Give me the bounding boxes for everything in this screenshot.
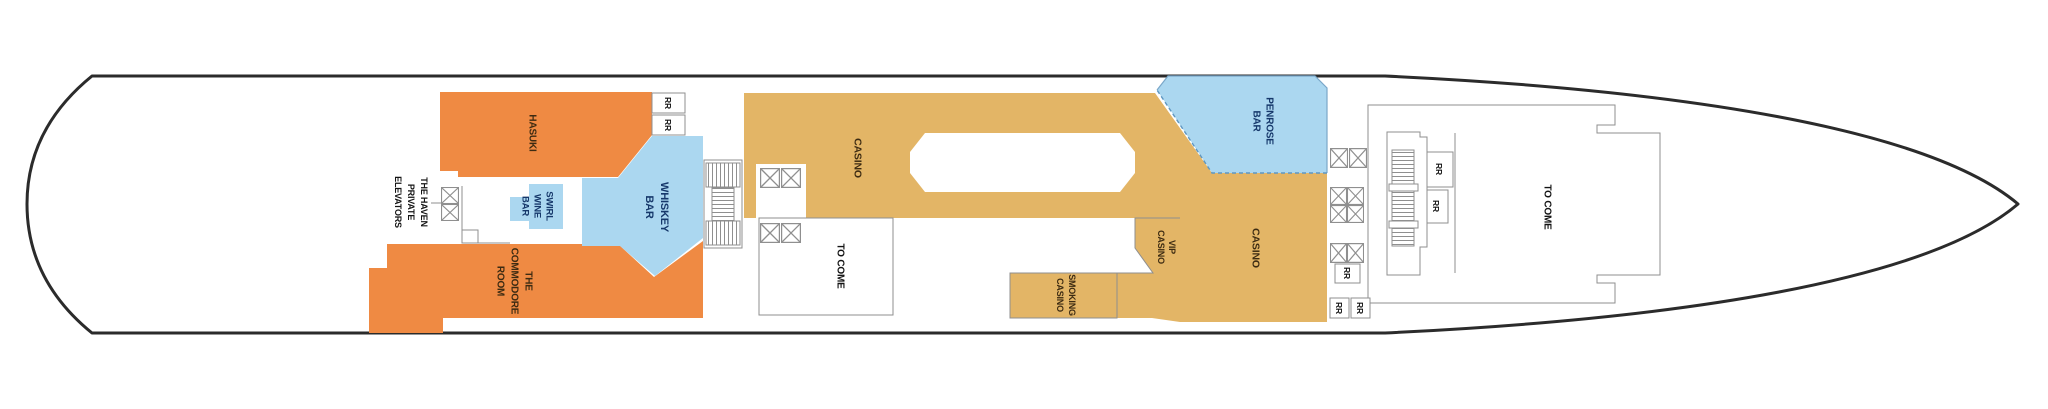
rr-label: RR <box>1434 163 1444 175</box>
casino-floor-cutout <box>910 133 1135 192</box>
casino-right-label: CASINO <box>1249 228 1261 268</box>
haven-elevators-label-line2: PRIVATE <box>406 184 416 220</box>
elevator-icon <box>1330 206 1346 223</box>
to-come-mid-label: TO COME <box>835 243 846 289</box>
stairs-icon <box>706 221 740 245</box>
commodore-room-label-line2: COMMODORE <box>509 248 520 315</box>
whiskey-bar-label-line1: WHISKEY <box>658 182 670 233</box>
deck-plan-svg: HASUKI THE HAVEN PRIVATE ELEVATORS SWIRL… <box>0 0 2048 409</box>
elevator-icon <box>1331 149 1348 168</box>
elevator-icon <box>761 169 780 188</box>
rr-label: RR <box>1431 200 1441 212</box>
elevator-icon <box>442 187 459 203</box>
vip-casino-label-line1: VIP <box>1167 240 1177 254</box>
swirl-wine-bar-label-line2: WINE <box>532 194 543 218</box>
commodore-room-label-line1: THE <box>523 271 534 291</box>
penrose-bar-label-line2: BAR <box>1251 110 1262 132</box>
penrose-bar-label-line1: PENROSE <box>1264 97 1275 145</box>
elevator-icon <box>1347 188 1363 205</box>
rr-label: RR <box>663 119 673 131</box>
stairs-icon <box>706 163 740 187</box>
stairs-icon <box>1392 150 1414 246</box>
haven-elevators-label-line3: ELEVATORS <box>393 176 403 228</box>
swirl-wine-bar-label-line3: BAR <box>520 196 531 216</box>
elevator-icon <box>782 224 801 243</box>
elevator-icon <box>782 169 801 188</box>
elevator-icon <box>1347 244 1363 263</box>
elevator-icon <box>1330 244 1346 263</box>
elevator-icon <box>761 224 780 243</box>
haven-elevators-label-line1: THE HAVEN <box>419 177 429 227</box>
commodore-room-label-line3: ROOM <box>495 266 506 296</box>
to-come-forward-label: TO COME <box>1542 184 1553 230</box>
swirl-wine-bar-label-line1: SWIRL <box>544 191 555 221</box>
rr-label: RR <box>1334 302 1344 314</box>
rr-label: RR <box>1342 267 1352 279</box>
room-hasuki <box>440 92 652 177</box>
elevator-icon <box>442 204 459 220</box>
stairs-icon <box>712 188 734 221</box>
elevator-icon <box>1347 206 1363 223</box>
deck-plan-canvas: HASUKI THE HAVEN PRIVATE ELEVATORS SWIRL… <box>0 0 2048 409</box>
smoking-casino-label-line1: SMOKING <box>1067 274 1077 316</box>
rr-label: RR <box>1355 302 1365 314</box>
elevator-icon <box>1330 188 1346 205</box>
stair-landing <box>1389 221 1418 228</box>
casino-label: CASINO <box>851 138 863 178</box>
rr-label: RR <box>663 97 673 109</box>
vip-casino-label-line2: CASINO <box>1156 230 1166 264</box>
whiskey-bar-label-line2: BAR <box>643 195 655 218</box>
hasuki-label: HASUKI <box>527 114 538 152</box>
smoking-casino-label-line2: CASINO <box>1055 278 1065 312</box>
stair-landing <box>1389 184 1418 191</box>
elevator-icon <box>1350 149 1367 168</box>
